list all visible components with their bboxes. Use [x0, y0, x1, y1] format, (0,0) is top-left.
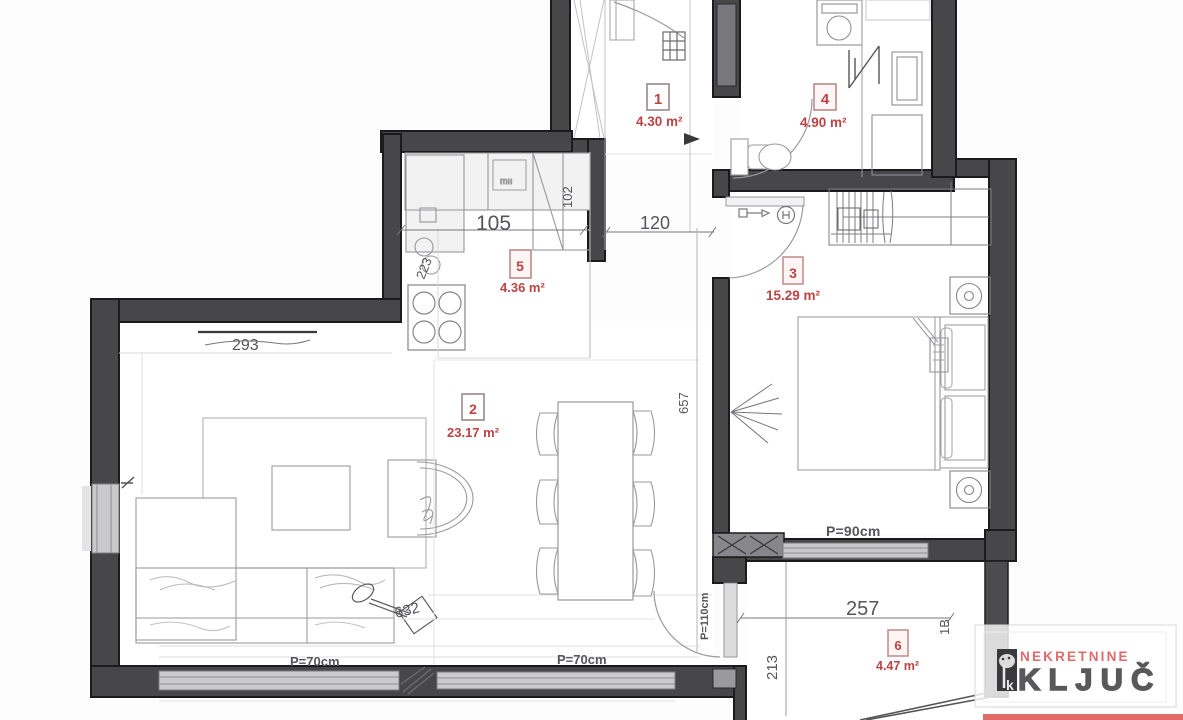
svg-text:P=90cm: P=90cm [826, 523, 881, 539]
svg-text:4.90 m²: 4.90 m² [800, 115, 847, 130]
svg-text:6: 6 [894, 638, 901, 653]
svg-text:293: 293 [232, 337, 259, 354]
svg-text:23.17 m²: 23.17 m² [447, 425, 500, 440]
svg-text:2: 2 [469, 401, 477, 417]
svg-text:120: 120 [640, 213, 670, 233]
svg-text:4.30 m²: 4.30 m² [636, 114, 683, 129]
svg-text:257: 257 [846, 598, 879, 620]
svg-text:P=110cm: P=110cm [699, 592, 711, 640]
svg-text:1B: 1B [937, 619, 952, 635]
svg-text:213: 213 [764, 655, 781, 680]
svg-text:P=70cm: P=70cm [290, 654, 340, 669]
svg-text:mıı: mıı [500, 176, 513, 186]
svg-text:3: 3 [789, 265, 797, 281]
svg-text:4.36 m²: 4.36 m² [500, 280, 545, 295]
svg-text:1: 1 [654, 91, 662, 108]
svg-text:5: 5 [516, 258, 524, 274]
svg-text:KLJUČ: KLJUČ [1018, 661, 1161, 697]
svg-text:k: k [1006, 677, 1014, 693]
svg-text:15.29 m²: 15.29 m² [766, 288, 821, 303]
svg-text:P=70cm: P=70cm [557, 652, 607, 667]
svg-text:657: 657 [676, 392, 691, 414]
svg-text:105: 105 [476, 212, 511, 235]
svg-text:4: 4 [821, 91, 830, 108]
svg-text:102: 102 [560, 186, 575, 208]
svg-text:4.47 m²: 4.47 m² [876, 659, 919, 673]
